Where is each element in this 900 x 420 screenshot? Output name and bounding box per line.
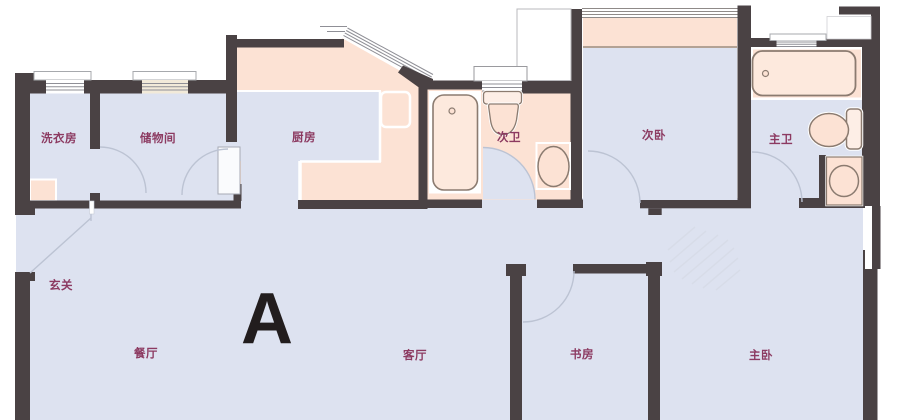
svg-text:次卧: 次卧: [642, 128, 666, 142]
svg-text:厨房: 厨房: [292, 130, 316, 144]
svg-text:客厅: 客厅: [402, 348, 427, 362]
svg-text:储物间: 储物间: [140, 131, 176, 145]
svg-text:次卫: 次卫: [497, 130, 521, 144]
svg-text:A: A: [241, 279, 293, 359]
svg-text:主卧: 主卧: [749, 348, 773, 362]
svg-text:餐厅: 餐厅: [133, 346, 158, 360]
svg-text:主卫: 主卫: [769, 132, 793, 146]
svg-text:洗衣房: 洗衣房: [41, 131, 77, 145]
svg-text:书房: 书房: [570, 347, 594, 361]
svg-text:玄关: 玄关: [49, 278, 73, 292]
